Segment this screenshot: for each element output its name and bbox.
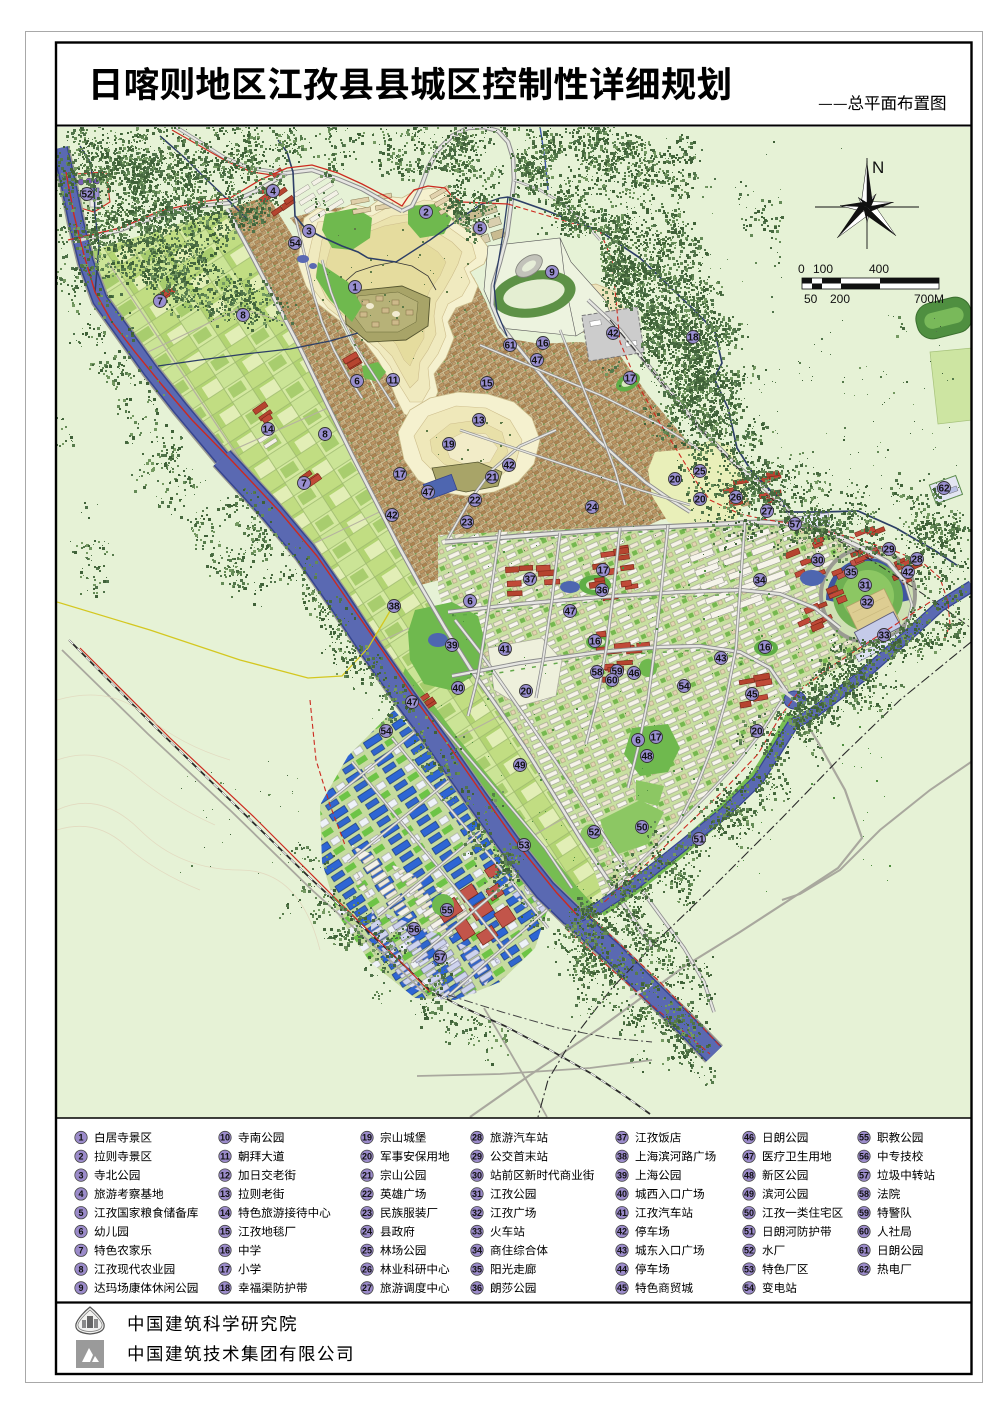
svg-text:42: 42 [386, 511, 398, 522]
svg-text:31: 31 [472, 1189, 482, 1199]
svg-text:17: 17 [597, 566, 609, 577]
svg-text:1: 1 [352, 283, 358, 294]
svg-text:31: 31 [859, 581, 871, 592]
svg-text:19: 19 [443, 440, 455, 451]
svg-text:27: 27 [761, 507, 773, 518]
svg-text:32: 32 [472, 1208, 482, 1218]
svg-text:36: 36 [472, 1283, 482, 1293]
svg-text:15: 15 [220, 1227, 230, 1237]
svg-text:47: 47 [406, 698, 418, 709]
svg-text:56: 56 [859, 1152, 869, 1162]
svg-text:47: 47 [531, 356, 543, 367]
svg-text:13: 13 [473, 416, 485, 427]
svg-text:6: 6 [467, 597, 473, 608]
svg-text:7: 7 [78, 1246, 83, 1256]
svg-text:20: 20 [751, 727, 763, 738]
svg-text:58: 58 [859, 1189, 869, 1199]
svg-text:16: 16 [589, 637, 601, 648]
svg-text:50: 50 [804, 292, 818, 306]
svg-text:17: 17 [394, 470, 406, 481]
svg-text:8: 8 [322, 430, 328, 441]
svg-text:55: 55 [859, 1133, 869, 1143]
svg-text:57: 57 [434, 953, 446, 964]
svg-text:30: 30 [812, 556, 824, 567]
svg-text:30: 30 [472, 1170, 482, 1180]
svg-text:8: 8 [240, 311, 246, 322]
svg-text:7: 7 [157, 297, 163, 308]
svg-text:38: 38 [617, 1152, 627, 1162]
svg-text:20: 20 [669, 475, 681, 486]
svg-text:100: 100 [813, 262, 833, 276]
svg-text:4: 4 [270, 187, 276, 198]
svg-text:18: 18 [687, 333, 699, 344]
svg-text:N: N [872, 158, 884, 177]
svg-text:59: 59 [859, 1208, 869, 1218]
svg-text:28: 28 [472, 1133, 482, 1143]
svg-text:17: 17 [624, 374, 636, 385]
svg-text:17: 17 [650, 733, 662, 744]
svg-text:20: 20 [694, 495, 706, 506]
svg-text:42: 42 [503, 461, 515, 472]
svg-text:47: 47 [744, 1152, 754, 1162]
svg-text:22: 22 [469, 496, 481, 507]
svg-text:25: 25 [694, 467, 706, 478]
svg-text:54: 54 [380, 727, 392, 738]
svg-text:36: 36 [596, 586, 608, 597]
svg-text:17: 17 [220, 1264, 230, 1274]
svg-text:3: 3 [306, 227, 312, 238]
svg-text:52: 52 [588, 828, 600, 839]
svg-text:43: 43 [617, 1246, 627, 1256]
svg-text:41: 41 [617, 1208, 627, 1218]
svg-text:47: 47 [422, 488, 434, 499]
svg-text:18: 18 [220, 1283, 230, 1293]
svg-text:55: 55 [441, 906, 453, 917]
svg-text:43: 43 [715, 654, 727, 665]
svg-text:40: 40 [452, 684, 464, 695]
svg-text:6: 6 [354, 377, 360, 388]
svg-text:53: 53 [518, 841, 530, 852]
svg-text:39: 39 [617, 1170, 627, 1180]
svg-text:9: 9 [549, 268, 555, 279]
svg-text:15: 15 [481, 379, 493, 390]
svg-text:0: 0 [798, 262, 805, 276]
svg-text:52: 52 [744, 1246, 754, 1256]
svg-text:6: 6 [78, 1227, 83, 1237]
svg-text:60: 60 [606, 676, 618, 687]
svg-text:400: 400 [869, 262, 889, 276]
svg-text:23: 23 [461, 518, 473, 529]
svg-text:5: 5 [477, 224, 483, 235]
svg-text:54: 54 [678, 682, 690, 693]
svg-text:8: 8 [78, 1264, 83, 1274]
svg-text:34: 34 [472, 1246, 482, 1256]
svg-text:46: 46 [744, 1133, 754, 1143]
svg-text:46: 46 [628, 669, 640, 680]
svg-text:39: 39 [446, 641, 458, 652]
svg-text:20: 20 [520, 687, 532, 698]
svg-text:62: 62 [938, 484, 950, 495]
svg-text:47: 47 [564, 607, 576, 618]
svg-text:42: 42 [902, 568, 914, 579]
svg-text:41: 41 [499, 645, 511, 656]
svg-text:16: 16 [759, 643, 771, 654]
svg-text:53: 53 [744, 1264, 754, 1274]
svg-text:54: 54 [744, 1283, 754, 1293]
svg-text:11: 11 [388, 376, 399, 387]
svg-text:24: 24 [362, 1227, 372, 1237]
svg-text:61: 61 [859, 1246, 869, 1256]
svg-text:25: 25 [362, 1246, 372, 1256]
svg-text:16: 16 [220, 1246, 230, 1256]
svg-text:3: 3 [78, 1170, 83, 1180]
svg-text:10: 10 [220, 1133, 230, 1143]
svg-text:49: 49 [744, 1189, 754, 1199]
svg-text:7: 7 [301, 479, 307, 490]
svg-text:56: 56 [408, 925, 420, 936]
svg-text:22: 22 [362, 1189, 372, 1199]
svg-text:32: 32 [861, 598, 873, 609]
svg-text:51: 51 [693, 835, 705, 846]
svg-text:61: 61 [504, 341, 516, 352]
svg-text:14: 14 [220, 1208, 230, 1218]
svg-text:38: 38 [388, 602, 400, 613]
svg-text:12: 12 [220, 1170, 230, 1180]
svg-text:60: 60 [859, 1227, 869, 1237]
svg-text:27: 27 [362, 1283, 372, 1293]
svg-text:26: 26 [730, 493, 742, 504]
svg-text:700M: 700M [914, 292, 944, 306]
svg-text:52: 52 [81, 190, 93, 201]
svg-text:40: 40 [617, 1189, 627, 1199]
svg-text:42: 42 [607, 329, 619, 340]
svg-text:57: 57 [789, 520, 801, 531]
svg-text:58: 58 [591, 668, 603, 679]
svg-text:28: 28 [911, 555, 923, 566]
svg-text:45: 45 [746, 690, 758, 701]
svg-text:33: 33 [472, 1227, 482, 1237]
svg-text:14: 14 [262, 425, 274, 436]
svg-text:200: 200 [830, 292, 850, 306]
svg-text:57: 57 [859, 1170, 869, 1180]
svg-text:16: 16 [537, 339, 549, 350]
svg-text:37: 37 [524, 575, 536, 586]
svg-text:5: 5 [78, 1208, 83, 1218]
svg-text:23: 23 [362, 1208, 372, 1218]
svg-text:37: 37 [617, 1133, 627, 1143]
svg-text:4: 4 [78, 1189, 83, 1199]
svg-text:49: 49 [514, 761, 526, 772]
svg-text:35: 35 [472, 1264, 482, 1274]
svg-text:42: 42 [617, 1227, 627, 1237]
svg-text:9: 9 [78, 1283, 83, 1293]
svg-text:1: 1 [78, 1133, 83, 1143]
svg-text:21: 21 [362, 1170, 372, 1180]
svg-text:62: 62 [859, 1264, 869, 1274]
svg-text:29: 29 [472, 1152, 482, 1162]
svg-text:54: 54 [289, 239, 301, 250]
svg-text:26: 26 [362, 1264, 372, 1274]
svg-text:29: 29 [883, 545, 895, 556]
svg-text:6: 6 [635, 736, 641, 747]
svg-text:20: 20 [362, 1152, 372, 1162]
svg-text:48: 48 [744, 1170, 754, 1180]
svg-text:35: 35 [845, 568, 857, 579]
svg-text:51: 51 [744, 1227, 754, 1237]
svg-text:24: 24 [586, 503, 598, 514]
svg-text:33: 33 [878, 631, 890, 642]
svg-text:21: 21 [486, 473, 498, 484]
svg-text:45: 45 [617, 1283, 627, 1293]
svg-text:48: 48 [641, 752, 653, 763]
svg-text:2: 2 [423, 208, 429, 219]
svg-text:11: 11 [220, 1152, 230, 1162]
svg-text:13: 13 [220, 1189, 230, 1199]
svg-text:19: 19 [362, 1133, 372, 1143]
svg-text:44: 44 [617, 1264, 627, 1274]
svg-text:2: 2 [78, 1152, 83, 1162]
svg-text:50: 50 [636, 823, 648, 834]
svg-text:34: 34 [754, 576, 766, 587]
svg-text:50: 50 [744, 1208, 754, 1218]
